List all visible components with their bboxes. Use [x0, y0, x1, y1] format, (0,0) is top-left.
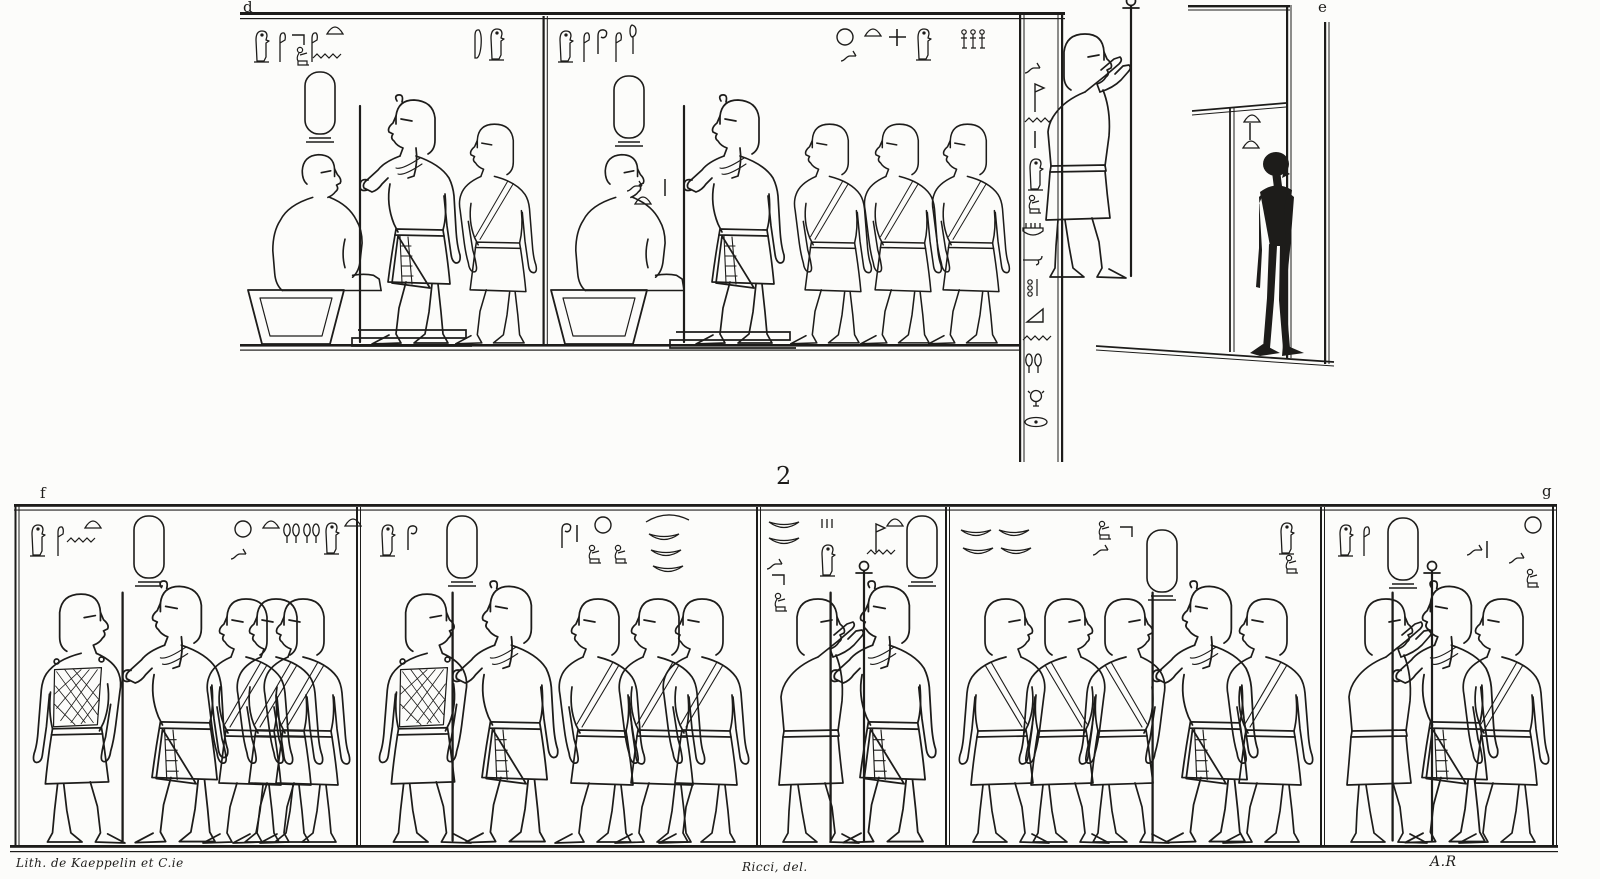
- r2-owl: [1279, 523, 1294, 554]
- r2-snake: [1467, 545, 1482, 555]
- r1-looppair: [1026, 354, 1041, 373]
- r2-owl: [1338, 525, 1353, 556]
- r1-reed: [280, 33, 285, 62]
- r2-kneel: [1527, 569, 1539, 587]
- credit-draughtsman: Ricci, del.: [742, 860, 808, 874]
- r2-owl: [380, 525, 395, 556]
- r2-attendant: [260, 599, 350, 843]
- r2-netted: [379, 594, 470, 843]
- r1-water: [1025, 118, 1053, 122]
- r2-elbow: [772, 575, 784, 585]
- label-top-right: e: [1318, 0, 1327, 15]
- doorway-wall: [1188, 5, 1330, 364]
- register1-frame: [240, 12, 1065, 462]
- r1-king: [360, 95, 460, 344]
- lithograph-plate: d e 2 f g Lith. de Kaeppelin et C.ie Ric…: [0, 0, 1600, 879]
- r2-attendant: [1223, 599, 1313, 843]
- r2-king: [1153, 581, 1258, 843]
- r2-ticks: [822, 519, 832, 528]
- r2-elbow: [1120, 527, 1132, 537]
- r2-water: [67, 538, 95, 542]
- r1-face: [1028, 391, 1044, 407]
- r1-cartouche: [305, 72, 335, 142]
- r1-kneel: [1029, 195, 1041, 213]
- r2-wavebowl: [646, 515, 689, 522]
- r1-silhouette: [1250, 152, 1304, 356]
- r1-attendant: [456, 124, 537, 344]
- r2-crook: [562, 524, 571, 548]
- r1-cross: [889, 29, 906, 46]
- r2-loaf: [263, 521, 279, 528]
- r2-reed: [58, 527, 63, 556]
- r2-standard: [779, 562, 872, 844]
- r1-bowlov: [1025, 418, 1047, 427]
- r1-feather: [475, 30, 481, 58]
- r2-crescent: [961, 530, 991, 536]
- r1-owl: [916, 29, 931, 60]
- r1-loaf: [327, 27, 343, 34]
- r2-water: [867, 550, 895, 554]
- r1-cartouche: [614, 76, 644, 146]
- r2-loaf: [85, 521, 101, 528]
- r1-stool: [248, 290, 344, 344]
- r1-seated: [273, 155, 381, 291]
- r2-cartouche: [907, 516, 937, 586]
- r1-water: [313, 54, 341, 58]
- r1-loaf: [1244, 115, 1260, 122]
- r1-stool: [551, 290, 647, 344]
- r1-owl: [558, 31, 573, 62]
- r2-snake: [1093, 545, 1108, 555]
- r2-crescent: [963, 548, 993, 554]
- r2-snake: [231, 549, 246, 559]
- r2-looppair: [284, 524, 299, 543]
- r1-snake: [841, 51, 856, 61]
- r2-loaf: [345, 519, 361, 526]
- r2-kneel: [615, 545, 627, 563]
- label-bottom-right: g: [1542, 484, 1552, 499]
- r1-mace: [630, 25, 636, 54]
- r2-kneel: [775, 593, 787, 611]
- r1-basket: [1023, 223, 1043, 235]
- r1-men3: [961, 30, 985, 48]
- r2-reed: [1364, 527, 1369, 556]
- r1-owl: [254, 31, 269, 62]
- r1-flag: [1035, 84, 1044, 112]
- r2-looppair: [304, 524, 319, 543]
- r1-owl: [1028, 159, 1043, 190]
- r1-jardots: [1028, 279, 1037, 296]
- r2-attendant: [1459, 599, 1549, 843]
- plate-drawing: [0, 0, 1600, 879]
- r1-king: [684, 95, 784, 344]
- r1-triangle: [1027, 309, 1043, 322]
- r1-sun: [837, 29, 853, 45]
- r2-flag: [876, 524, 885, 552]
- label-top-left: d: [243, 0, 253, 15]
- register2-frame: [10, 504, 1558, 852]
- r1-elbow: [292, 35, 304, 45]
- r1-reed: [584, 33, 589, 62]
- r1-crook: [598, 30, 607, 54]
- r2-owl: [324, 523, 339, 554]
- register2-hieroglyphs: [30, 515, 1541, 611]
- r1-seated: [576, 155, 684, 291]
- r1-attendant: [929, 124, 1010, 344]
- r2-king: [123, 581, 228, 843]
- label-bottom-left: f: [40, 486, 46, 501]
- r2-sun: [1525, 517, 1541, 533]
- credit-lithographer: Lith. de Kaeppelin et C.ie: [16, 856, 184, 870]
- label-register-number: 2: [776, 464, 791, 488]
- register1-figures: [248, 95, 1304, 356]
- r2-crescent: [653, 566, 683, 572]
- r2-king: [831, 581, 936, 843]
- r2-cartouche: [134, 516, 164, 586]
- r2-cartouche: [1147, 530, 1177, 600]
- r2-netted: [33, 594, 124, 843]
- r1-attendant: [791, 124, 872, 344]
- r2-crescent: [769, 538, 799, 544]
- r1-kneel: [297, 47, 309, 65]
- r2-crescent: [649, 534, 679, 540]
- r2-crook: [408, 526, 417, 550]
- r2-crescent: [999, 530, 1029, 536]
- r1-water: [1023, 336, 1051, 340]
- r1-reed: [616, 33, 621, 62]
- r1-loaf: [1243, 141, 1259, 148]
- r2-crescent: [651, 550, 681, 556]
- r1-loaf: [865, 29, 881, 36]
- r2-cartouche: [447, 516, 477, 586]
- r2-owl: [820, 545, 835, 576]
- r2-attendant: [1079, 599, 1169, 843]
- r2-kneel: [1099, 521, 1111, 539]
- r2-crescent: [769, 522, 799, 528]
- r2-kneel: [589, 545, 601, 563]
- r2-kneel: [1286, 555, 1298, 573]
- r2-attendant: [233, 599, 323, 843]
- r2-sun: [235, 521, 251, 537]
- r1-armcurl: [1023, 256, 1042, 265]
- r2-sun: [595, 517, 611, 533]
- r1-snake: [1025, 63, 1040, 73]
- r2-crescent: [1001, 548, 1031, 554]
- r2-snake: [767, 559, 782, 569]
- r1-attendant: [861, 124, 942, 344]
- r2-owl: [30, 525, 45, 556]
- r2-cartouche: [1388, 518, 1418, 588]
- credit-initials: A.R: [1430, 854, 1457, 870]
- r2-snake: [1509, 553, 1524, 563]
- r1-owl: [489, 29, 504, 60]
- r2-king: [453, 581, 558, 843]
- r1-standard: [1046, 0, 1139, 278]
- r2-loaf: [887, 519, 903, 526]
- register1-hieroglyphs: [254, 0, 1260, 427]
